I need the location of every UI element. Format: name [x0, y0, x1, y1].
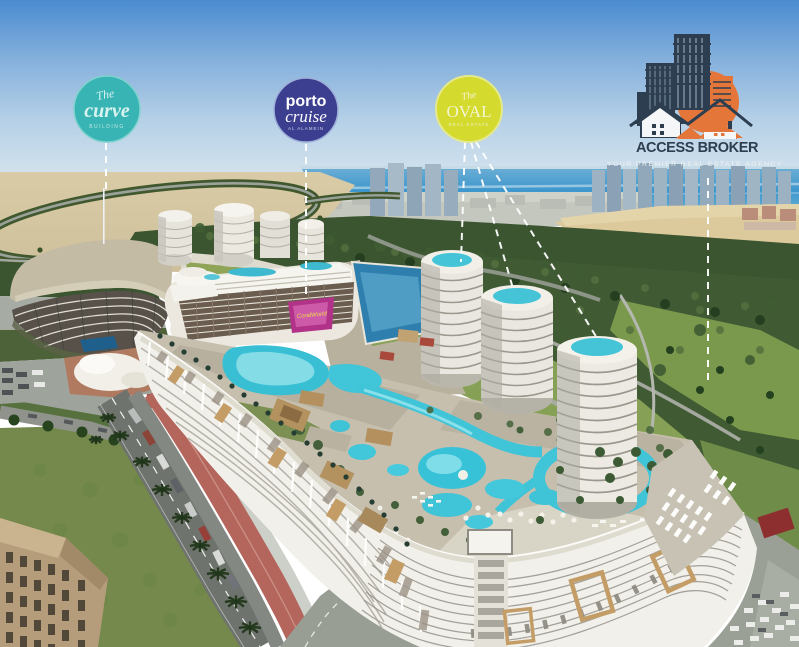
svg-text:AL ALAMEIN: AL ALAMEIN: [288, 126, 324, 131]
svg-text:BUILDING: BUILDING: [89, 124, 125, 130]
svg-text:cruise: cruise: [285, 107, 327, 126]
svg-text:REAL ESTATE: REAL ESTATE: [449, 122, 490, 127]
svg-text:curve: curve: [84, 100, 130, 122]
svg-text:OVAL: OVAL: [446, 102, 491, 121]
svg-text:ACCESS BROKER: ACCESS BROKER: [636, 140, 759, 156]
svg-text:YOUR PREMIER REAL ESTATE AGENC: YOUR PREMIER REAL ESTATE AGENCY: [607, 161, 783, 168]
